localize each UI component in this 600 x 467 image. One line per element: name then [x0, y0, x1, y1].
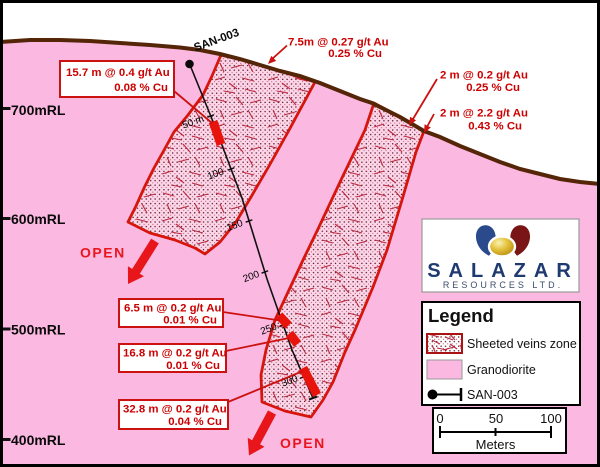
svg-text:0.01 % Cu: 0.01 % Cu	[163, 315, 217, 327]
svg-text:50: 50	[489, 411, 503, 426]
svg-text:RESOURCES LTD.: RESOURCES LTD.	[443, 280, 563, 290]
svg-text:OPEN: OPEN	[80, 245, 126, 261]
svg-text:0.04 % Cu: 0.04 % Cu	[168, 416, 222, 428]
svg-text:0.08 % Cu: 0.08 % Cu	[114, 82, 168, 94]
svg-text:Meters: Meters	[476, 437, 516, 452]
svg-text:7.5m @ 0.27 g/t Au: 7.5m @ 0.27 g/t Au	[288, 37, 389, 49]
svg-text:400mRL: 400mRL	[11, 432, 66, 448]
svg-text:32.8 m @ 0.2 g/t Au: 32.8 m @ 0.2 g/t Au	[123, 404, 227, 416]
svg-text:Legend: Legend	[428, 305, 494, 326]
svg-text:15.7 m @ 0.4 g/t Au: 15.7 m @ 0.4 g/t Au	[66, 67, 170, 79]
svg-text:OPEN: OPEN	[280, 435, 326, 451]
svg-text:0.25 % Cu: 0.25 % Cu	[466, 82, 520, 94]
svg-text:0.25 % Cu: 0.25 % Cu	[328, 48, 382, 60]
svg-text:6.5 m @ 0.2 g/t Au: 6.5 m @ 0.2 g/t Au	[124, 303, 221, 315]
svg-text:0.43 % Cu: 0.43 % Cu	[468, 121, 522, 133]
svg-text:SAN-003: SAN-003	[467, 388, 518, 402]
svg-text:700mRL: 700mRL	[11, 102, 66, 118]
svg-text:16.8 m @ 0.2 g/t Au: 16.8 m @ 0.2 g/t Au	[123, 348, 227, 360]
svg-text:SALAZAR: SALAZAR	[427, 260, 579, 282]
svg-text:0: 0	[436, 411, 443, 426]
svg-text:Sheeted veins zone: Sheeted veins zone	[467, 337, 577, 351]
svg-text:0.01 % Cu: 0.01 % Cu	[166, 360, 220, 372]
svg-text:2 m @ 0.2 g/t Au: 2 m @ 0.2 g/t Au	[440, 70, 528, 82]
svg-text:600mRL: 600mRL	[11, 211, 66, 227]
svg-text:500mRL: 500mRL	[11, 322, 66, 338]
svg-text:2 m @ 2.2 g/t Au: 2 m @ 2.2 g/t Au	[440, 108, 528, 120]
svg-text:Granodiorite: Granodiorite	[467, 363, 536, 377]
svg-text:100: 100	[540, 411, 562, 426]
